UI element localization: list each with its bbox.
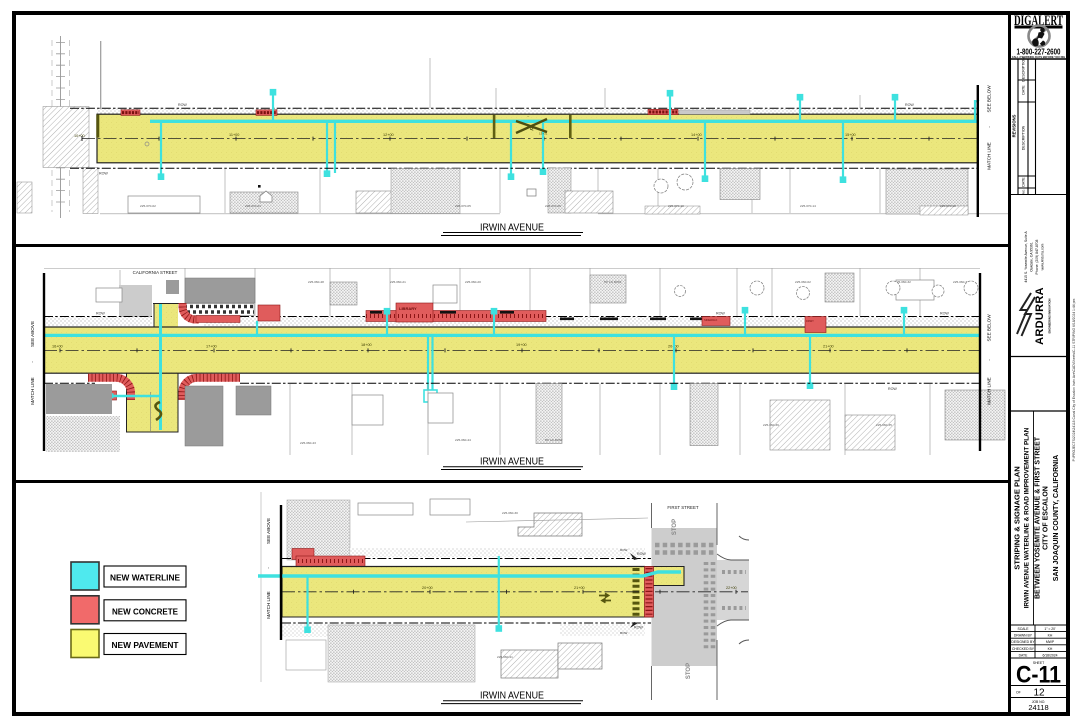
- svg-text:50' LD ROW: 50' LD ROW: [545, 438, 562, 442]
- svg-text:C-11: C-11: [1016, 662, 1061, 689]
- svg-text:11+00: 11+00: [229, 133, 239, 137]
- svg-text:225-060-39: 225-060-39: [763, 423, 779, 427]
- svg-text:SAN JOAQUIN COUNTY, CALIFORNIA: SAN JOAQUIN COUNTY, CALIFORNIA: [1053, 455, 1060, 581]
- svg-text:13+31: 13+31: [539, 132, 548, 136]
- svg-text:18+00: 18+00: [361, 343, 372, 347]
- svg-text:IRWIN AVENUE WATERLINE & ROAD: IRWIN AVENUE WATERLINE & ROAD IMPROVEMEN…: [1024, 427, 1031, 608]
- svg-text:CHECKED BY: CHECKED BY: [1012, 647, 1035, 651]
- svg-text:16+00: 16+00: [52, 345, 63, 349]
- svg-text:1" = 20': 1" = 20': [1044, 627, 1056, 631]
- svg-text:DATE: DATE: [1022, 177, 1026, 187]
- svg-text:STOP: STOP: [686, 663, 692, 679]
- svg-text:Oakdale, CA 95361: Oakdale, CA 95361: [1030, 242, 1034, 272]
- svg-text:SIDEWALK: SIDEWALK: [704, 318, 718, 322]
- svg-text:OF: OF: [1016, 691, 1021, 695]
- svg-text:-: -: [30, 361, 35, 363]
- svg-text:225-070-18: 225-070-18: [940, 204, 956, 208]
- svg-text:Phone: (209) 847-8708: Phone: (209) 847-8708: [1035, 239, 1039, 274]
- svg-text:BETWEEN YOSEMITE AVENUE & FIRS: BETWEEN YOSEMITE AVENUE & FIRST STREET: [1035, 436, 1042, 599]
- svg-text:ROW: ROW: [96, 312, 105, 316]
- svg-text:ROW: ROW: [178, 103, 187, 107]
- svg-text:225-060-21: 225-060-21: [390, 280, 406, 284]
- svg-text:ROW: ROW: [940, 312, 949, 316]
- svg-text:ROW: ROW: [620, 631, 628, 635]
- svg-text:CALIFORNIA STREET: CALIFORNIA STREET: [133, 270, 178, 275]
- svg-text:ARDURRA: ARDURRA: [1034, 287, 1046, 345]
- svg-text:MATCH LINE: MATCH LINE: [987, 142, 992, 169]
- svg-text:IRWIN AVENUE: IRWIN AVENUE: [480, 223, 544, 234]
- svg-text:DATE: DATE: [1019, 653, 1029, 657]
- svg-text:MATCH LINE: MATCH LINE: [987, 377, 992, 404]
- svg-text:-: -: [987, 359, 992, 361]
- svg-text:NEW PAVEMENT: NEW PAVEMENT: [112, 641, 179, 650]
- svg-text:NEW WATERLINE: NEW WATERLINE: [110, 574, 181, 583]
- svg-text:21+00: 21+00: [574, 586, 585, 590]
- svg-text:KH: KH: [1048, 634, 1053, 638]
- svg-text:225-060-44: 225-060-44: [455, 438, 471, 442]
- svg-text:NO.: NO.: [1022, 189, 1026, 195]
- svg-text:225-060-41: 225-060-41: [497, 655, 513, 659]
- svg-text:DATE: DATE: [1022, 85, 1026, 95]
- svg-text:6/18/2024: 6/18/2024: [1042, 653, 1057, 657]
- svg-text:ROW: ROW: [637, 552, 646, 556]
- svg-text:LIBRARY: LIBRARY: [399, 306, 417, 311]
- svg-text:DESIGNED BY: DESIGNED BY: [1011, 640, 1035, 644]
- svg-text:225-070-04: 225-070-04: [245, 204, 261, 208]
- svg-text:DRAWN BY: DRAWN BY: [1014, 634, 1033, 638]
- svg-text:225-060-35: 225-060-35: [876, 423, 892, 427]
- svg-text:P:\PROJECTS\2024\24118 Canal C: P:\PROJECTS\2024\24118 Canal City of Esc…: [1072, 299, 1076, 462]
- svg-text:10+00: 10+00: [74, 134, 85, 138]
- svg-text:15+00: 15+00: [845, 133, 856, 137]
- svg-text:225-060-43: 225-060-43: [300, 441, 316, 445]
- svg-text:REVISIONS: REVISIONS: [1012, 114, 1017, 137]
- svg-text:SEE ABOVE: SEE ABOVE: [30, 321, 35, 347]
- svg-text:225-060-48: 225-060-48: [308, 280, 324, 284]
- svg-text:225-060-30: 225-060-30: [502, 511, 518, 515]
- svg-text:50' LD ROW: 50' LD ROW: [604, 280, 621, 284]
- svg-text:SEE BELOW: SEE BELOW: [987, 314, 992, 342]
- svg-text:DESCRIPTION: DESCRIPTION: [1022, 125, 1026, 150]
- svg-text:20+00: 20+00: [422, 586, 433, 590]
- svg-text:KH: KH: [1048, 647, 1053, 651]
- svg-text:22+00: 22+00: [726, 586, 737, 590]
- svg-text:-: -: [266, 567, 271, 569]
- svg-text:17+00: 17+00: [206, 345, 217, 349]
- svg-text:SEE BELOW: SEE BELOW: [987, 85, 992, 113]
- svg-text:225-060-02: 225-060-02: [795, 280, 811, 284]
- svg-text:225-070-10: 225-070-10: [668, 204, 684, 208]
- svg-text:12+00: 12+00: [383, 133, 394, 137]
- svg-text:ROW: ROW: [888, 387, 897, 391]
- svg-text:12: 12: [1033, 688, 1045, 699]
- svg-text:STRIPING & SIGNAGE PLAN: STRIPING & SIGNAGE PLAN: [1013, 466, 1022, 569]
- svg-text:ROW: ROW: [620, 548, 628, 552]
- svg-text:DESCRIPTION: DESCRIPTION: [1022, 57, 1026, 82]
- svg-text:SEE ABOVE: SEE ABOVE: [266, 518, 271, 544]
- svg-text:SCALE: SCALE: [1017, 627, 1029, 631]
- svg-text:4415 S. Yosemite Avenue, Suite: 4415 S. Yosemite Avenue, Suite A: [1024, 231, 1028, 283]
- svg-text:MATCH LINE: MATCH LINE: [266, 591, 271, 618]
- svg-text:19+00: 19+00: [516, 343, 527, 347]
- svg-text:ROW: ROW: [99, 172, 108, 176]
- svg-text:FIRST STREET: FIRST STREET: [667, 505, 698, 510]
- svg-text:DRWY: DRWY: [806, 319, 814, 323]
- svg-text:IRWIN AVENUE: IRWIN AVENUE: [480, 691, 544, 702]
- svg-text:225-070-06: 225-070-06: [545, 204, 561, 208]
- svg-text:225-070-02: 225-070-02: [140, 204, 156, 208]
- svg-text:CITY OF ESCALON: CITY OF ESCALON: [1043, 486, 1050, 550]
- svg-text:IRWIN AVENUE: IRWIN AVENUE: [480, 457, 544, 468]
- svg-text:ROW: ROW: [905, 103, 914, 107]
- svg-text:225-060-20: 225-060-20: [465, 280, 481, 284]
- svg-text:MATCH LINE: MATCH LINE: [30, 377, 35, 404]
- svg-text:ENGINEERING INNOVATION: ENGINEERING INNOVATION: [1048, 298, 1052, 333]
- svg-text:14+00: 14+00: [691, 133, 702, 137]
- svg-text:225-070-14: 225-070-14: [800, 204, 816, 208]
- svg-text:MWP: MWP: [1046, 640, 1055, 644]
- svg-text:www.Ardurra.com: www.Ardurra.com: [1041, 243, 1045, 270]
- svg-text:NEW CONCRETE: NEW CONCRETE: [112, 607, 179, 616]
- svg-text:21+00: 21+00: [823, 345, 834, 349]
- svg-text:ROW: ROW: [634, 626, 643, 630]
- svg-text:24118: 24118: [1028, 703, 1048, 712]
- svg-text:ROW: ROW: [716, 312, 725, 316]
- svg-text:STOP: STOP: [672, 519, 678, 535]
- svg-text:225-070-05: 225-070-05: [455, 204, 471, 208]
- svg-text:-: -: [987, 126, 992, 128]
